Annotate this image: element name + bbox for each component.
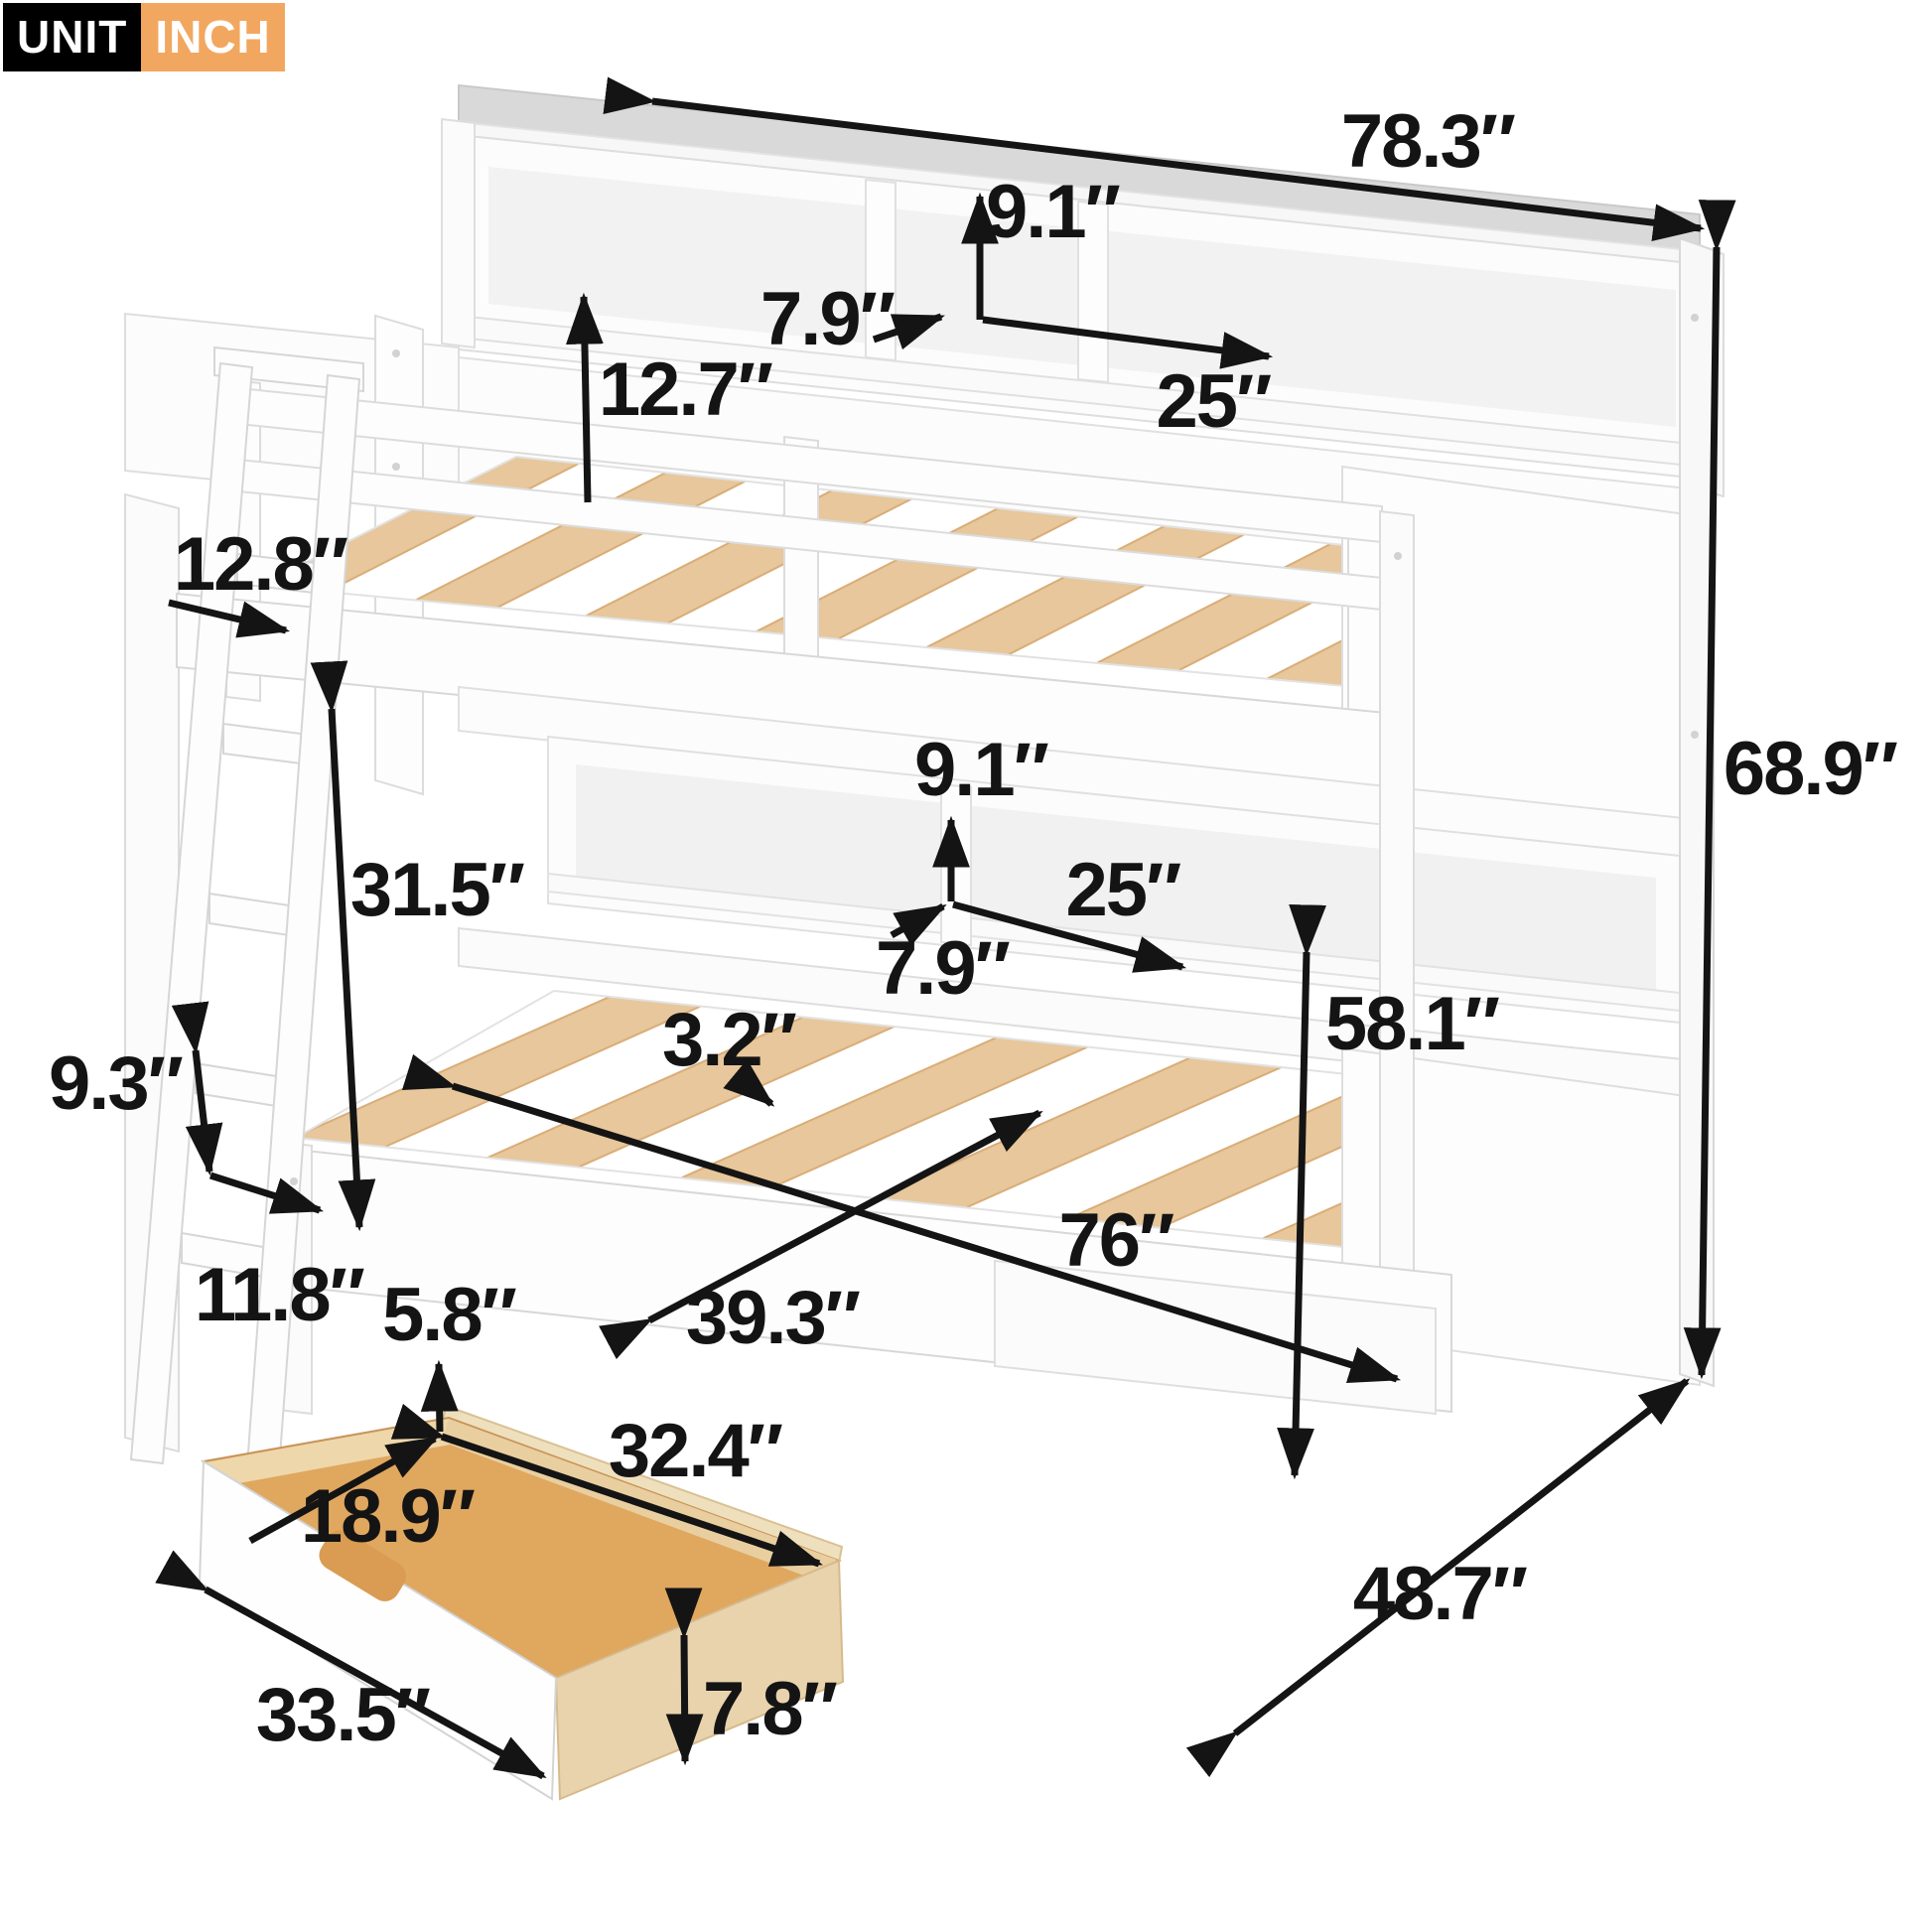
dim-drawer-clearance-label: 5.8″ [382, 1278, 515, 1353]
dim-mid-shelf-height-label: 9.1″ [914, 733, 1047, 808]
dim-top-shelf-height-label: 9.1″ [986, 175, 1119, 250]
unit-badge-value: INCH [141, 3, 284, 71]
dim-bunk-clearance-line [332, 709, 359, 1227]
dim-lower-frame-height-label: 58.1″ [1325, 987, 1498, 1062]
dim-slat-thickness-label: 3.2″ [662, 1003, 795, 1078]
dim-ladder-step-spacing-label: 9.3″ [49, 1046, 182, 1122]
dim-drawer-height-label: 7.8″ [703, 1672, 836, 1747]
dim-mid-shelf-width-label: 25″ [1066, 853, 1180, 928]
dim-overall-depth-label: 48.7″ [1353, 1557, 1526, 1632]
dim-drawer-outer-length-label: 33.5″ [256, 1678, 429, 1753]
dim-top-shelf-width-label: 25″ [1157, 364, 1271, 440]
unit-badge: UNIT INCH [3, 3, 285, 71]
dim-overall-length-label: 78.3″ [1341, 104, 1514, 180]
dim-drawer-clearance-line [439, 1364, 440, 1432]
dim-top-shelf-depth-label: 7.9″ [760, 282, 894, 357]
unit-badge-label: UNIT [3, 3, 141, 71]
dim-shelf-clearance-line [584, 297, 588, 502]
dim-bunk-clearance-label: 31.5″ [350, 853, 523, 928]
dim-overall-height-label: 68.9″ [1724, 732, 1896, 807]
dim-bed-inner-length-label: 76″ [1059, 1203, 1173, 1279]
dim-mid-shelf-depth-label: 7.9″ [876, 931, 1009, 1007]
diagram-stage: 78.3″ 9.1″ 7.9″ 25″ 12.7″ 12.8″ 31.5″ 9.… [0, 0, 1932, 1932]
dim-drawer-inner-length-label: 32.4″ [609, 1414, 781, 1489]
dim-drawer-height-line [684, 1635, 685, 1761]
dim-bed-inner-width-label: 39.3″ [686, 1281, 859, 1356]
dim-ladder-width-label: 11.8″ [195, 1258, 363, 1333]
dim-ladder-top-offset-label: 12.8″ [174, 527, 346, 603]
dim-drawer-inner-width-label: 18.9″ [301, 1479, 474, 1555]
dim-shelf-clearance-label: 12.7″ [599, 352, 771, 428]
